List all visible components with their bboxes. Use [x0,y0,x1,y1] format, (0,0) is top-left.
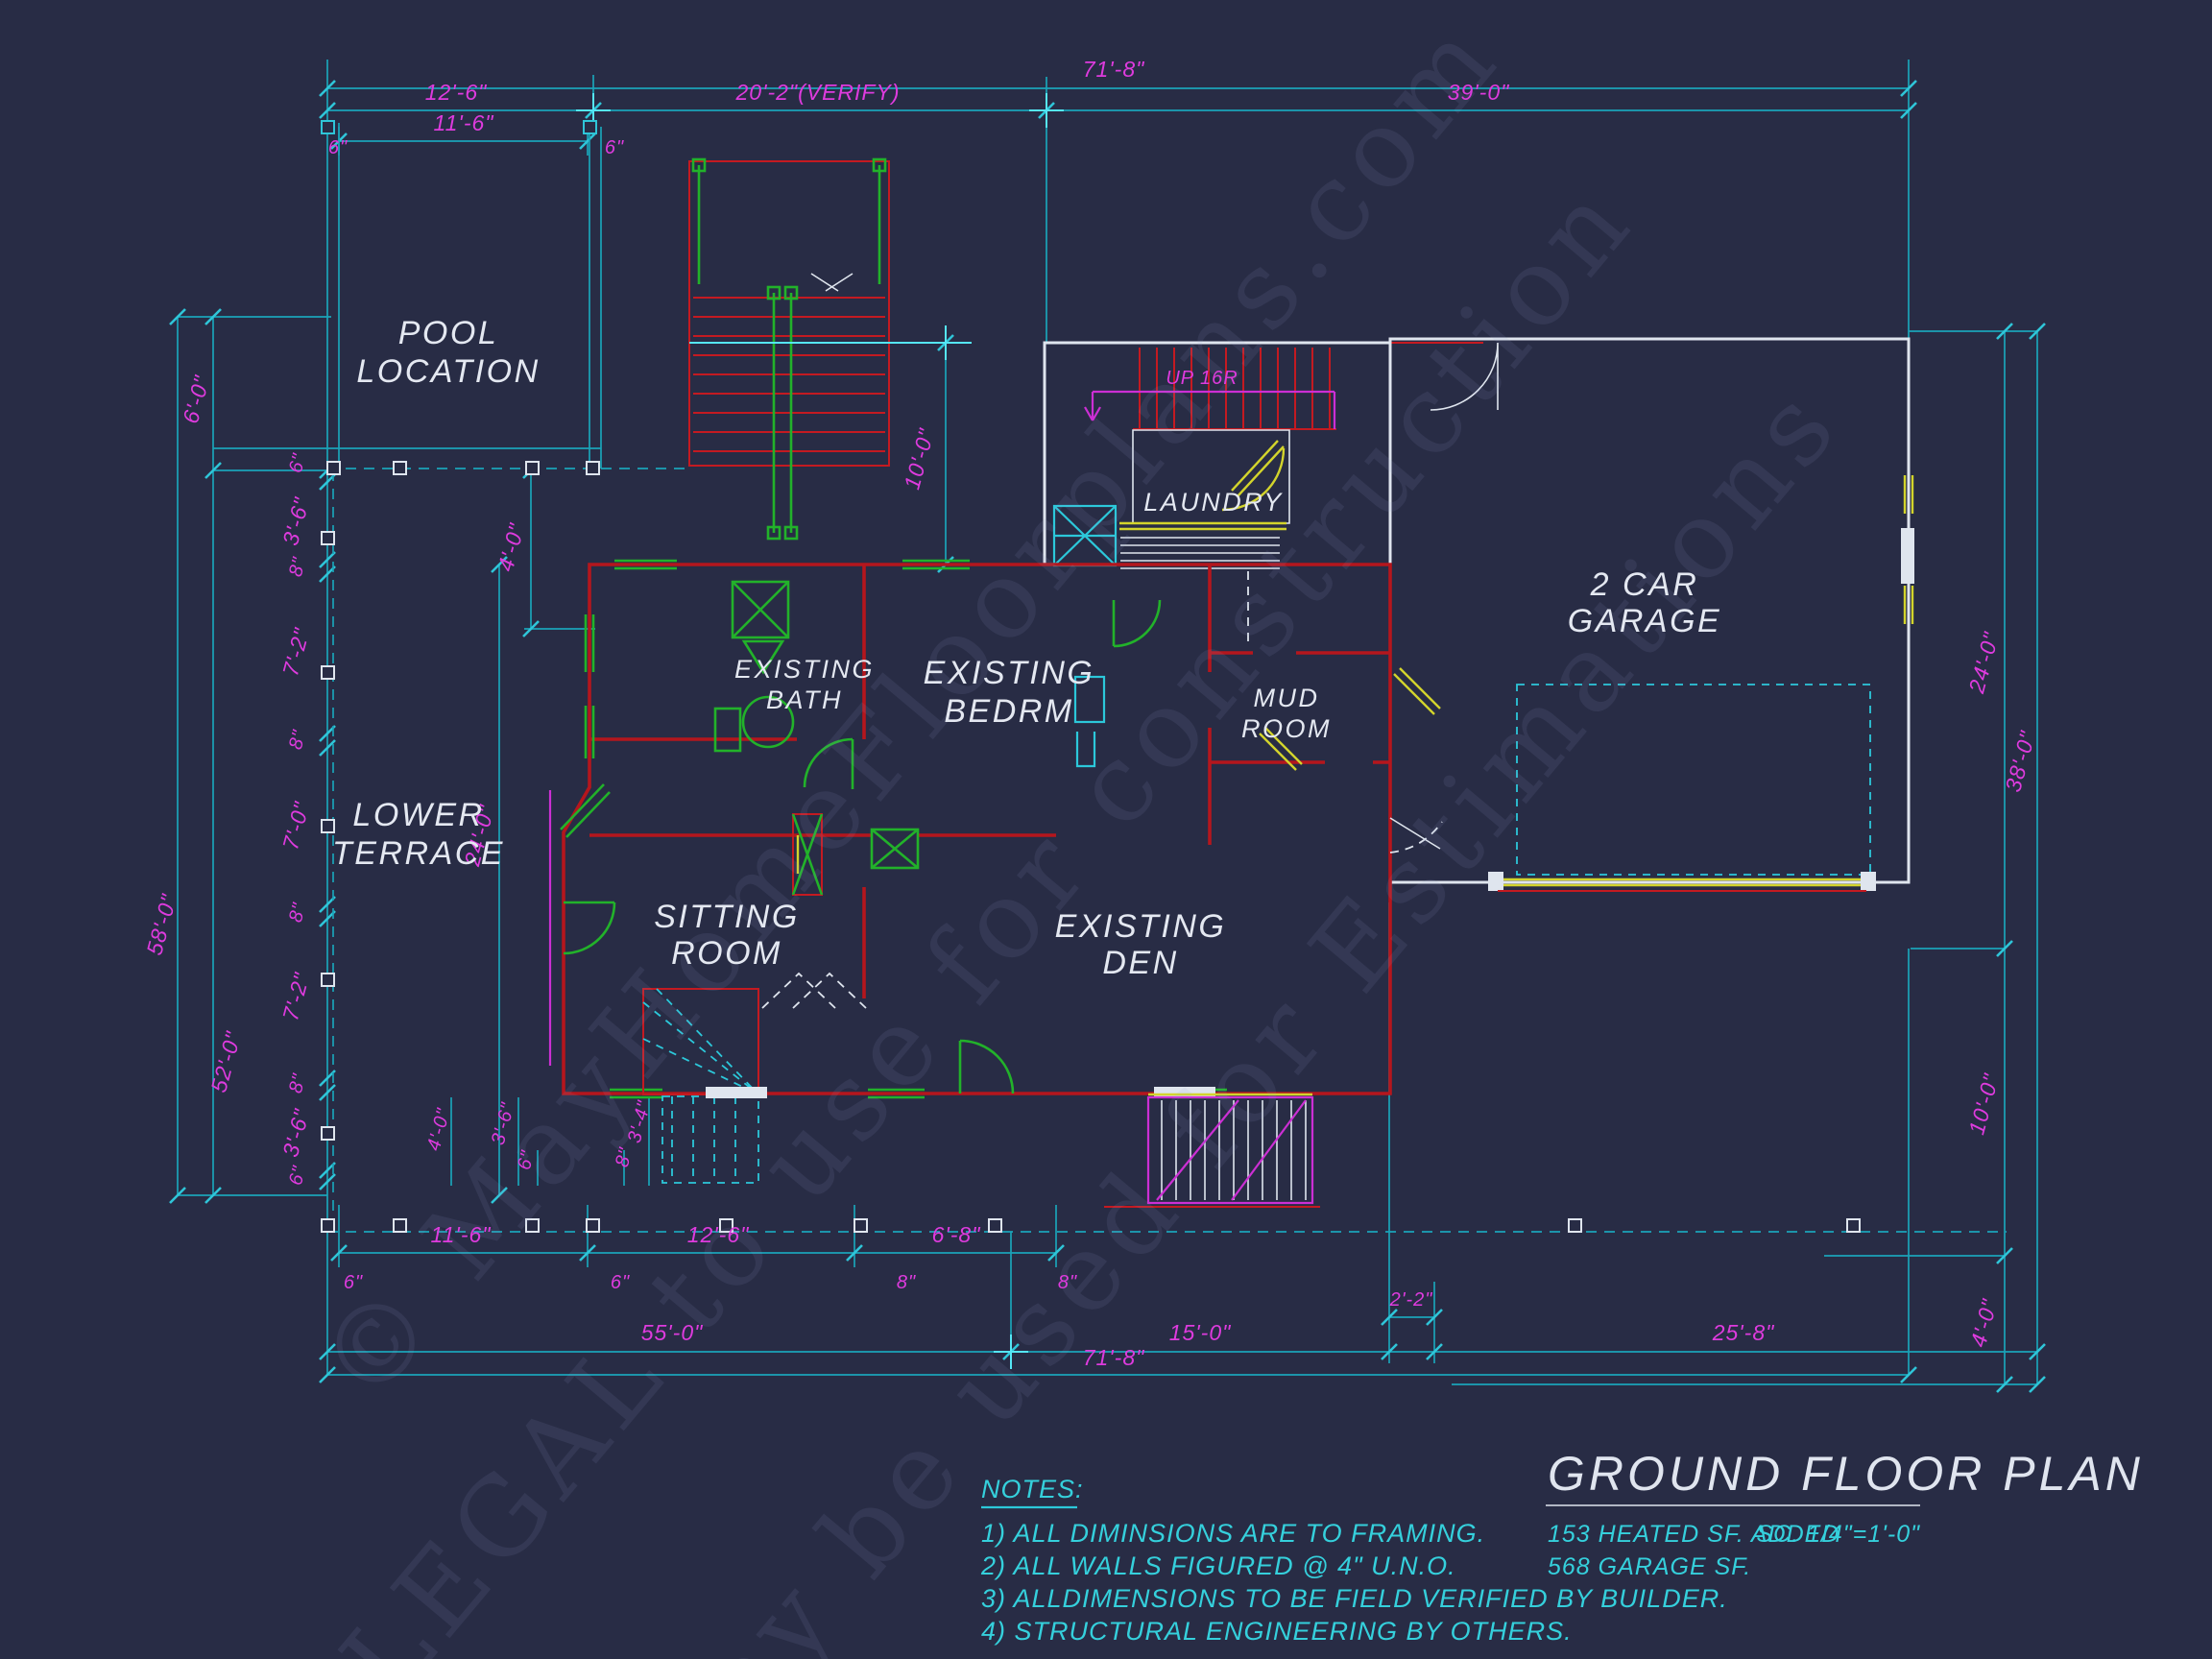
room-label-sitting-2: ROOM [671,935,782,972]
exterior-stair-top [689,159,972,539]
room-label-bath-1: EXISTING [734,655,875,684]
room-label-bedroom-1: EXISTING [924,655,1095,691]
sheet-title: GROUND FLOOR PLAN [1548,1447,2144,1501]
room-label-terrace-1: LOWER [352,797,484,833]
dim-bottom-leader-1: 6" [611,1272,630,1293]
room-label-garage-1: 2 CAR [1590,566,1699,603]
dim-right-10-0: 10'-0" [1963,1070,2004,1138]
note-item-4: 4) STRUCTURAL ENGINEERING BY OTHERS. [981,1617,1573,1646]
dim-bottom-overall: 71'-8" [1083,1345,1145,1370]
area-note-2: 568 GARAGE SF. [1548,1553,1751,1580]
room-label-bedroom-2: BEDRM [944,693,1073,730]
room-label-terrace-2: TERRACE [332,835,505,872]
ground-floor-plan-drawing: © MayHomeFloorplans.com ILLEGAL to use f… [0,0,2212,1659]
dim-left-chain-7: 7'-2" [277,969,314,1023]
room-label-garage-2: GARAGE [1568,603,1721,639]
dim-top-overall: 71'-8" [1083,57,1145,82]
note-item-2: 2) ALL WALLS FIGURED @ 4" U.N.O. [980,1551,1456,1580]
room-label-mud-1: MUD [1254,684,1320,712]
scale-label: SC. 1/4"=1'-0" [1756,1521,1920,1548]
dim-top-11-6: 11'-6" [434,110,495,135]
dim-top-leader-6-left: 6" [328,137,348,158]
dim-bottom-2-2: 2'-2" [1389,1289,1433,1310]
room-label-den-2: DEN [1102,945,1178,981]
notes-heading: NOTES: [981,1475,1084,1503]
note-item-3: 3) ALLDIMENSIONS TO BE FIELD VERIFIED BY… [981,1584,1728,1613]
dim-bottom-12-6: 12'-6" [687,1222,750,1247]
pool-terrace-lines [213,121,2007,1232]
dim-left-58-0: 58'-0" [141,891,181,958]
watermark-line-1: © MayHomeFloorplans.com [295,0,1525,1426]
dim-stair-4-0: 4'-0" [423,1106,455,1153]
dim-bottom-11-6: 11'-6" [431,1222,493,1247]
dim-right-38-0: 38'-0" [2000,728,2040,795]
room-label-bath-2: BATH [766,685,843,714]
dim-left-chain-10: 6" [285,1164,310,1188]
dim-left-chain-5: 7'-0" [277,798,314,853]
dim-left-6-0: 6'-0" [178,372,214,426]
dim-top-20-2-verify: 20'-2"(VERIFY) [735,80,901,105]
dim-left-chain-4: 8" [285,728,310,752]
dim-bottom-15-0: 15'-0" [1169,1320,1232,1345]
title-block: GROUND FLOOR PLAN 153 HEATED SF. ADDED 5… [1546,1447,2144,1580]
dim-right-4-0: 4'-0" [1965,1295,2002,1350]
dim-left-chain-9: 3'-6" [277,1105,314,1160]
room-label-den-1: EXISTING [1055,908,1227,945]
room-label-sitting-1: SITTING [654,899,800,935]
dim-bottom-25-8: 25'-8" [1712,1320,1775,1345]
dim-left-52-0: 52'-0" [205,1028,246,1095]
note-item-1: 1) ALL DIMINSIONS ARE TO FRAMING. [981,1519,1485,1548]
dim-left-chain-0: 6" [285,451,310,475]
room-label-pool-1: POOL [398,315,498,351]
dim-left-chain-8: 8" [285,1071,310,1095]
dim-bottom-55-0: 55'-0" [641,1320,704,1345]
room-label-laundry: LAUNDRY [1143,488,1284,517]
dim-bottom-6-8: 6'-8" [932,1222,982,1247]
dim-left-chain-2: 8" [285,555,310,579]
dimension-text-right: 24'-0" 10'-0" 4'-0" 38'-0" [1963,629,2040,1350]
stair-up-note: UP 16R [1166,368,1238,389]
dim-stair-8: 8" [612,1145,637,1169]
dim-top-12-6: 12'-6" [425,80,488,105]
dim-bottom-leader-2: 8" [897,1272,916,1293]
dim-top-leader-6-right: 6" [605,137,624,158]
dim-bottom-leader-0: 6" [344,1272,363,1293]
dim-bottom-leader-3: 8" [1058,1272,1077,1293]
dim-left-chain-1: 3'-6" [277,493,314,548]
dim-left-chain-6: 8" [285,901,310,925]
dim-right-24-0: 24'-0" [1963,629,2004,697]
dim-terrace-offset: 4'-0" [493,519,529,574]
floorplan-canvas: © MayHomeFloorplans.com ILLEGAL to use f… [0,0,2212,1659]
room-label-pool-2: LOCATION [356,353,540,390]
dim-porch-depth: 10'-0" [899,425,939,493]
dim-left-chain-3: 7'-2" [277,624,314,679]
dim-top-39-0: 39'-0" [1448,80,1510,105]
room-label-mud-2: ROOM [1241,714,1332,743]
